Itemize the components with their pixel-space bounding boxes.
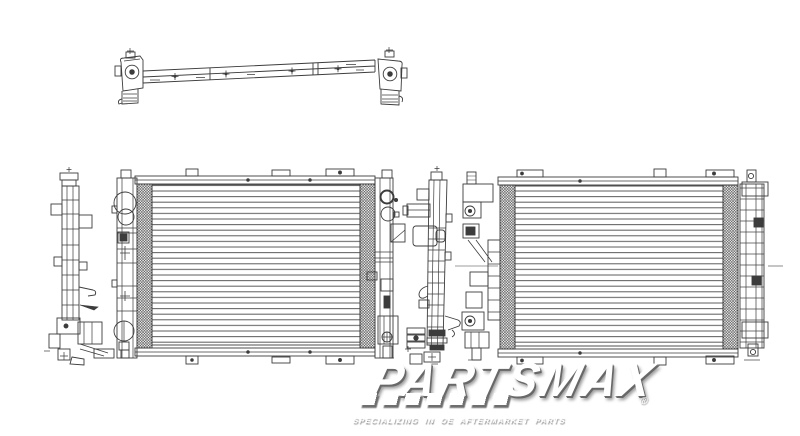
radiator-front-view-right [455,169,783,365]
middle-side-view-drawing [403,166,460,364]
radiator-front-view-left [112,169,405,364]
technical-line-art [0,0,800,436]
left-side-view-drawing [44,167,114,365]
radiator-parts-diagram: PARTSMAX ® SPECIALIZING IN OE AFTERMARKE… [0,0,800,436]
top-view-crossmember-drawing [115,47,407,105]
